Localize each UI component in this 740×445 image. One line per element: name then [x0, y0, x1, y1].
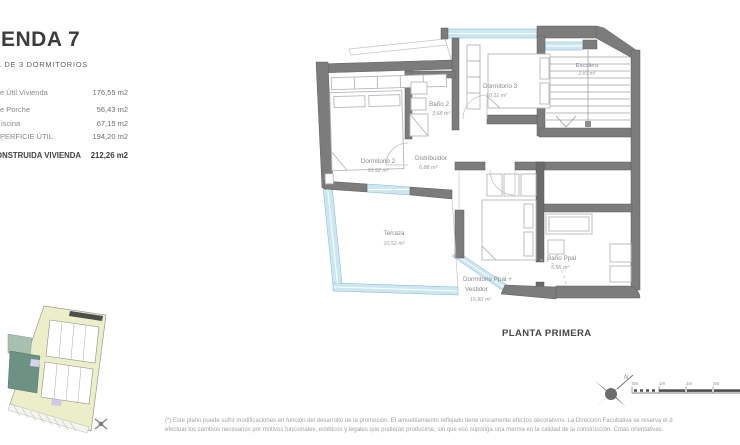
highlighted-unit [8, 351, 40, 393]
mini-compass-icon [95, 419, 107, 429]
disclaimer-line-1: (*) Este plano puede sufrir modificacion… [165, 417, 740, 426]
room-area-terraza: 10,52 m² [383, 241, 404, 247]
scale-tick-2: 2m [686, 381, 693, 386]
scale-tick-3: 3m [713, 381, 720, 386]
footer-disclaimer: (*) Este plano puede sufrir modificacion… [165, 417, 740, 435]
site-plan-thumbnail [8, 306, 107, 433]
floor-label: PLANTA PRIMERA [502, 328, 592, 339]
room-label-distribuidor: Distribuidor [415, 155, 447, 162]
room-area-dormitorio2: 10,92 m² [367, 168, 388, 174]
room-area-dormitorio3: 10,11 m² [486, 93, 507, 99]
scale-tick-0: 0m [632, 381, 639, 386]
room-label-bano-ppal: Baño Ppal [547, 255, 576, 262]
bed-dormitorio-ppal [482, 174, 536, 260]
compass-north-label: N [624, 375, 629, 381]
brochure-page: ENDA 7 L DE 3 DORMITORIOS e Útil Viviend… [0, 0, 740, 445]
room-label-dormitorio3: Dormitorio 3 [483, 83, 518, 90]
room-label-terraza: Terraza [384, 230, 405, 237]
north-compass-icon: N [591, 375, 633, 410]
bathroom2-fixtures [410, 82, 428, 136]
scale-bar: 0m 1m 2m 3m [632, 381, 740, 393]
bathroom-ppal-fixtures [546, 214, 631, 282]
room-label-escalera: Escalera [576, 63, 599, 69]
bed-dormitorio3 [467, 45, 550, 109]
canopy-outline [349, 39, 452, 62]
disclaimer-line-2: efectuar los cambios necesarios por moti… [165, 426, 740, 435]
room-label-dormitorio-ppal: Dormitorio Ppal + [463, 276, 512, 283]
room-area-bano2: 3,68 m² [432, 111, 450, 117]
room-label-bano2: Baño 2 [429, 101, 449, 108]
room-area-bano-ppal: 5,55 m² [551, 265, 569, 271]
room-label-dormitorio-ppal-line2: Vestidor [465, 286, 488, 293]
stairs-icon [546, 50, 630, 128]
room-area-dormitorio-ppal: 16,82 m² [470, 297, 491, 303]
scale-tick-1: 1m [659, 381, 666, 386]
room-area-distribuidor: 6,88 m² [419, 165, 437, 171]
floor-plan-canvas: Dormitorio 2 10,92 m² Baño 2 3,68 m² Dis… [0, 0, 740, 445]
room-area-escalera: 2,81 m² [578, 71, 596, 77]
room-label-dormitorio2: Dormitorio 2 [361, 158, 396, 165]
floor-plan: Dormitorio 2 10,92 m² Baño 2 3,68 m² Dis… [316, 26, 640, 303]
